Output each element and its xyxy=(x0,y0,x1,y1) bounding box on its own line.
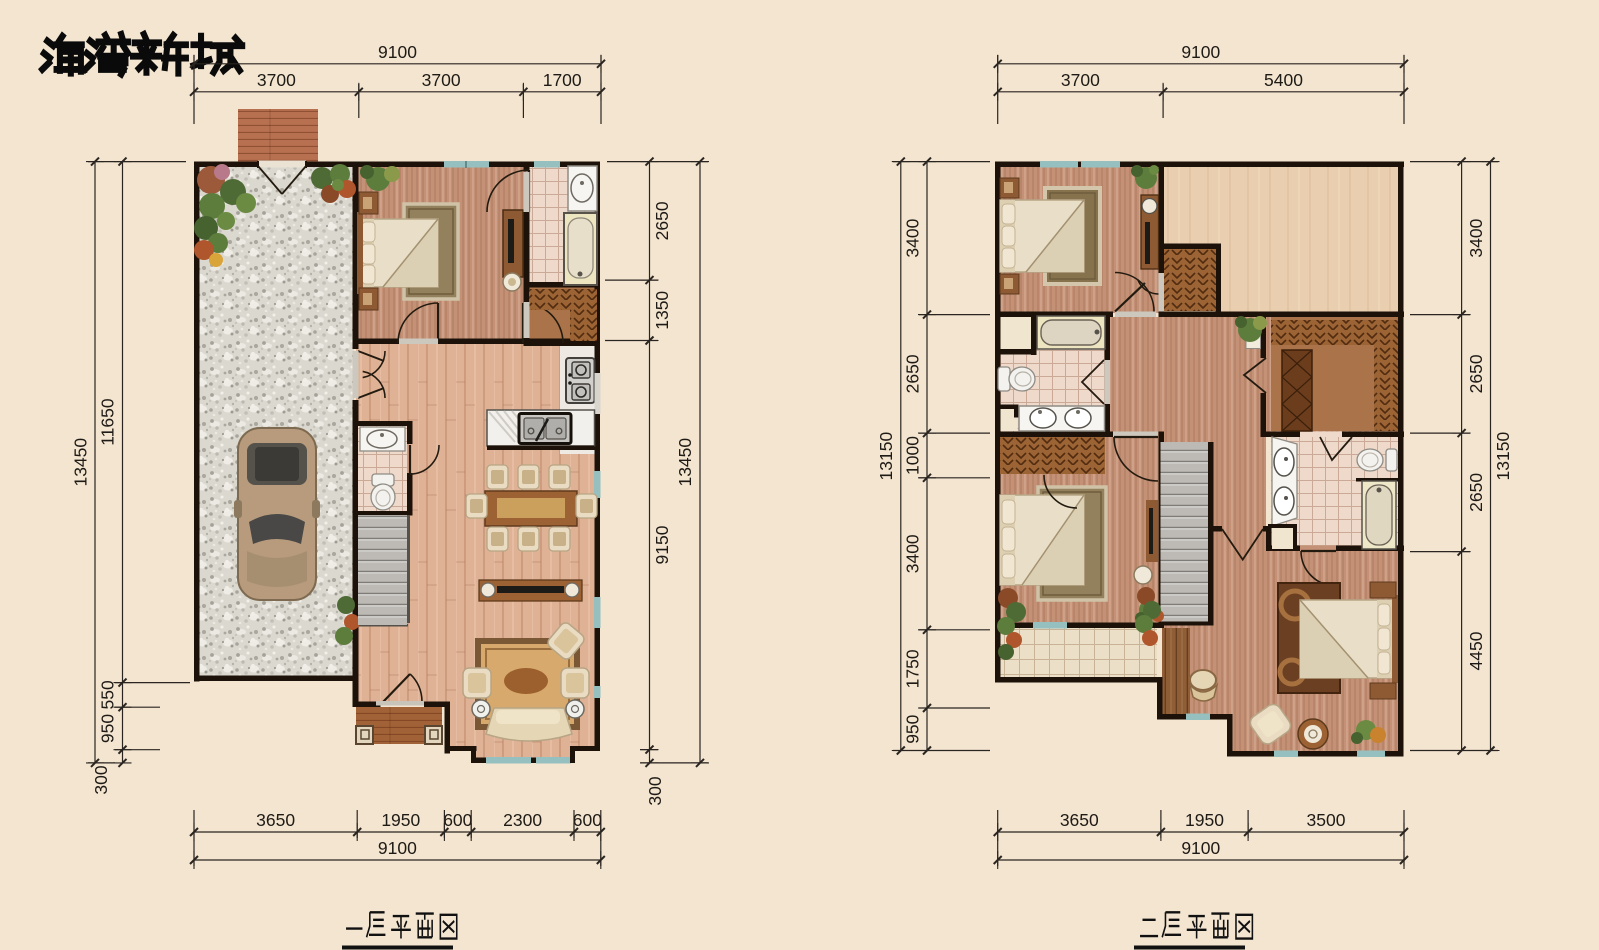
svg-text:1700: 1700 xyxy=(543,70,582,90)
svg-text:13150: 13150 xyxy=(876,432,896,481)
svg-text:950: 950 xyxy=(98,714,118,743)
svg-text:2300: 2300 xyxy=(503,810,542,830)
svg-text:3700: 3700 xyxy=(1061,70,1100,90)
svg-text:1350: 1350 xyxy=(652,291,672,330)
svg-text:600: 600 xyxy=(443,810,472,830)
svg-text:600: 600 xyxy=(573,810,602,830)
svg-text:3400: 3400 xyxy=(1466,218,1486,257)
svg-text:3700: 3700 xyxy=(257,70,296,90)
svg-text:11650: 11650 xyxy=(98,398,118,446)
svg-text:2650: 2650 xyxy=(652,201,672,240)
svg-text:3500: 3500 xyxy=(1307,810,1346,830)
svg-text:4450: 4450 xyxy=(1466,631,1486,670)
svg-text:950: 950 xyxy=(903,714,923,743)
svg-text:13450: 13450 xyxy=(71,438,91,487)
svg-text:9150: 9150 xyxy=(652,525,672,564)
svg-text:300: 300 xyxy=(91,765,111,794)
svg-text:9100: 9100 xyxy=(1181,838,1220,858)
svg-text:3700: 3700 xyxy=(422,70,461,90)
svg-text:3650: 3650 xyxy=(1060,810,1099,830)
svg-text:550: 550 xyxy=(98,680,118,709)
svg-text:5400: 5400 xyxy=(1264,70,1303,90)
svg-text:3650: 3650 xyxy=(256,810,295,830)
svg-text:9100: 9100 xyxy=(378,838,417,858)
svg-text:2650: 2650 xyxy=(903,354,923,393)
svg-text:9100: 9100 xyxy=(378,42,417,62)
svg-text:1000: 1000 xyxy=(903,436,923,475)
svg-text:1950: 1950 xyxy=(381,810,420,830)
svg-text:3400: 3400 xyxy=(903,218,923,257)
svg-text:1950: 1950 xyxy=(1185,810,1224,830)
svg-text:300: 300 xyxy=(645,776,665,805)
svg-text:13150: 13150 xyxy=(1493,432,1513,481)
svg-text:13450: 13450 xyxy=(675,438,695,487)
svg-text:9100: 9100 xyxy=(1181,42,1220,62)
svg-text:1750: 1750 xyxy=(903,649,923,688)
svg-text:2650: 2650 xyxy=(1466,473,1486,512)
svg-text:2650: 2650 xyxy=(1466,354,1486,393)
svg-text:3400: 3400 xyxy=(903,534,923,573)
